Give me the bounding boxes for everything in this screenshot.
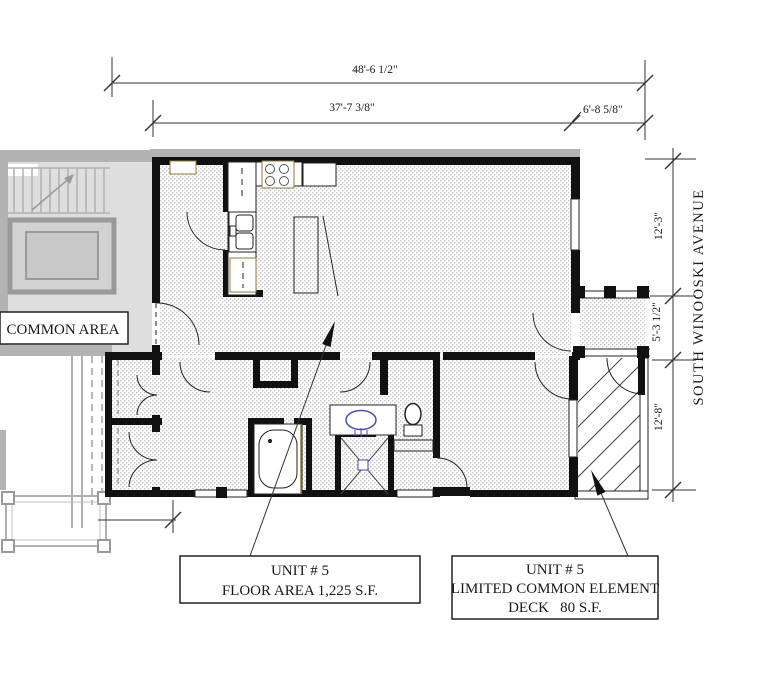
common-bottom-wall — [0, 345, 112, 356]
dim-side-upper: 12'-3" — [653, 212, 665, 240]
east-wall-upper — [571, 157, 580, 199]
unit-label-line2: FLOOR AREA 1,225 S.F. — [222, 583, 378, 599]
porch-post — [637, 286, 649, 298]
roof-overhang-band — [150, 149, 580, 157]
deck-door-leaf — [638, 357, 645, 395]
refrigerator — [303, 163, 336, 186]
west-wall-upper — [152, 157, 160, 303]
unit-floor-hatch — [112, 165, 645, 490]
divider-wall — [372, 352, 433, 360]
east-wall-entry-jamb — [571, 293, 580, 313]
deck-label-line1: UNIT # 5 — [526, 562, 584, 578]
deck-label-line2: LIMITED COMMON ELEMENT — [451, 581, 659, 597]
deck-label-leader — [601, 493, 628, 556]
burner — [280, 177, 289, 186]
sink-bowl — [236, 233, 253, 249]
den-shelf — [170, 161, 196, 174]
shower-wall — [335, 430, 341, 497]
floor-plan-drawing: 48'-6 1/2" 37'-7 3/8" 6'-8 5/8" 12'-3" 5… — [0, 0, 757, 676]
stair — [8, 168, 110, 213]
deck-label-box: UNIT # 5 LIMITED COMMON ELEMENT DECK 80 … — [451, 556, 659, 619]
divider-wall — [253, 352, 340, 360]
toilet-tank — [404, 425, 422, 436]
dim-side-lower: 12'-8" — [653, 403, 665, 431]
dim-leader-hook — [572, 112, 581, 122]
street-label: SOUTH WINOOSKI AVENUE — [691, 188, 707, 405]
porch-post — [637, 346, 649, 358]
porch-post — [604, 286, 616, 298]
burner — [266, 165, 275, 174]
window-east-lower — [569, 400, 577, 457]
floor-plan-sheet: 48'-6 1/2" 37'-7 3/8" 6'-8 5/8" 12'-3" 5… — [0, 0, 757, 676]
unit-label-box: UNIT # 5 FLOOR AREA 1,225 S.F. — [180, 556, 420, 603]
dim-overall-width: 48'-6 1/2" — [352, 64, 397, 76]
vanity-counter — [330, 405, 396, 435]
shower-wall — [388, 430, 394, 497]
bath-bedroom-wall-jamb — [433, 488, 440, 497]
sink-bowl — [236, 215, 253, 231]
common-area-label-box: COMMON AREA — [0, 312, 128, 344]
common-area-label: COMMON AREA — [7, 322, 120, 338]
tubroom-wall — [248, 418, 254, 497]
nook-wall — [253, 381, 298, 388]
north-wall — [152, 157, 580, 165]
tubroom-wall — [306, 418, 312, 497]
unit-label-line1: UNIT # 5 — [271, 563, 329, 579]
burner — [280, 165, 289, 174]
elevator — [10, 220, 114, 292]
east-wall-upper2 — [571, 250, 580, 298]
common-lower-structure — [0, 356, 110, 552]
divider-wall — [215, 352, 253, 360]
toilet-bowl — [405, 404, 421, 425]
bath-bedroom-wall — [433, 352, 440, 458]
dim-entry-width: 6'-8 5/8" — [583, 104, 623, 116]
deck-door-arc — [607, 358, 643, 394]
closet-wall — [152, 352, 160, 375]
closet-wall — [152, 487, 160, 497]
hall-pier — [380, 360, 388, 395]
shower-drain — [358, 460, 368, 470]
window-east-upper — [571, 199, 579, 250]
window-south-bedroom — [397, 490, 433, 497]
tub-drain — [268, 439, 271, 442]
dim-upper-width: 37'-7 3/8" — [329, 102, 374, 114]
east-wall-lower — [569, 356, 578, 400]
common-top-wall — [0, 150, 152, 162]
closet-divider — [105, 418, 162, 425]
sink-faucet — [230, 226, 236, 236]
entry-porch-floor — [580, 298, 645, 348]
deck-label-line3: DECK 80 S.F. — [508, 600, 602, 616]
dim-side-middle: 5'-3 1/2" — [651, 302, 663, 342]
deck-south-railing — [575, 491, 648, 499]
south-wall — [470, 490, 578, 497]
divider-wall — [443, 352, 535, 360]
south-wall — [105, 490, 195, 497]
window-mullion-post — [216, 487, 227, 498]
divider-wall — [572, 352, 580, 360]
burner — [266, 177, 275, 186]
